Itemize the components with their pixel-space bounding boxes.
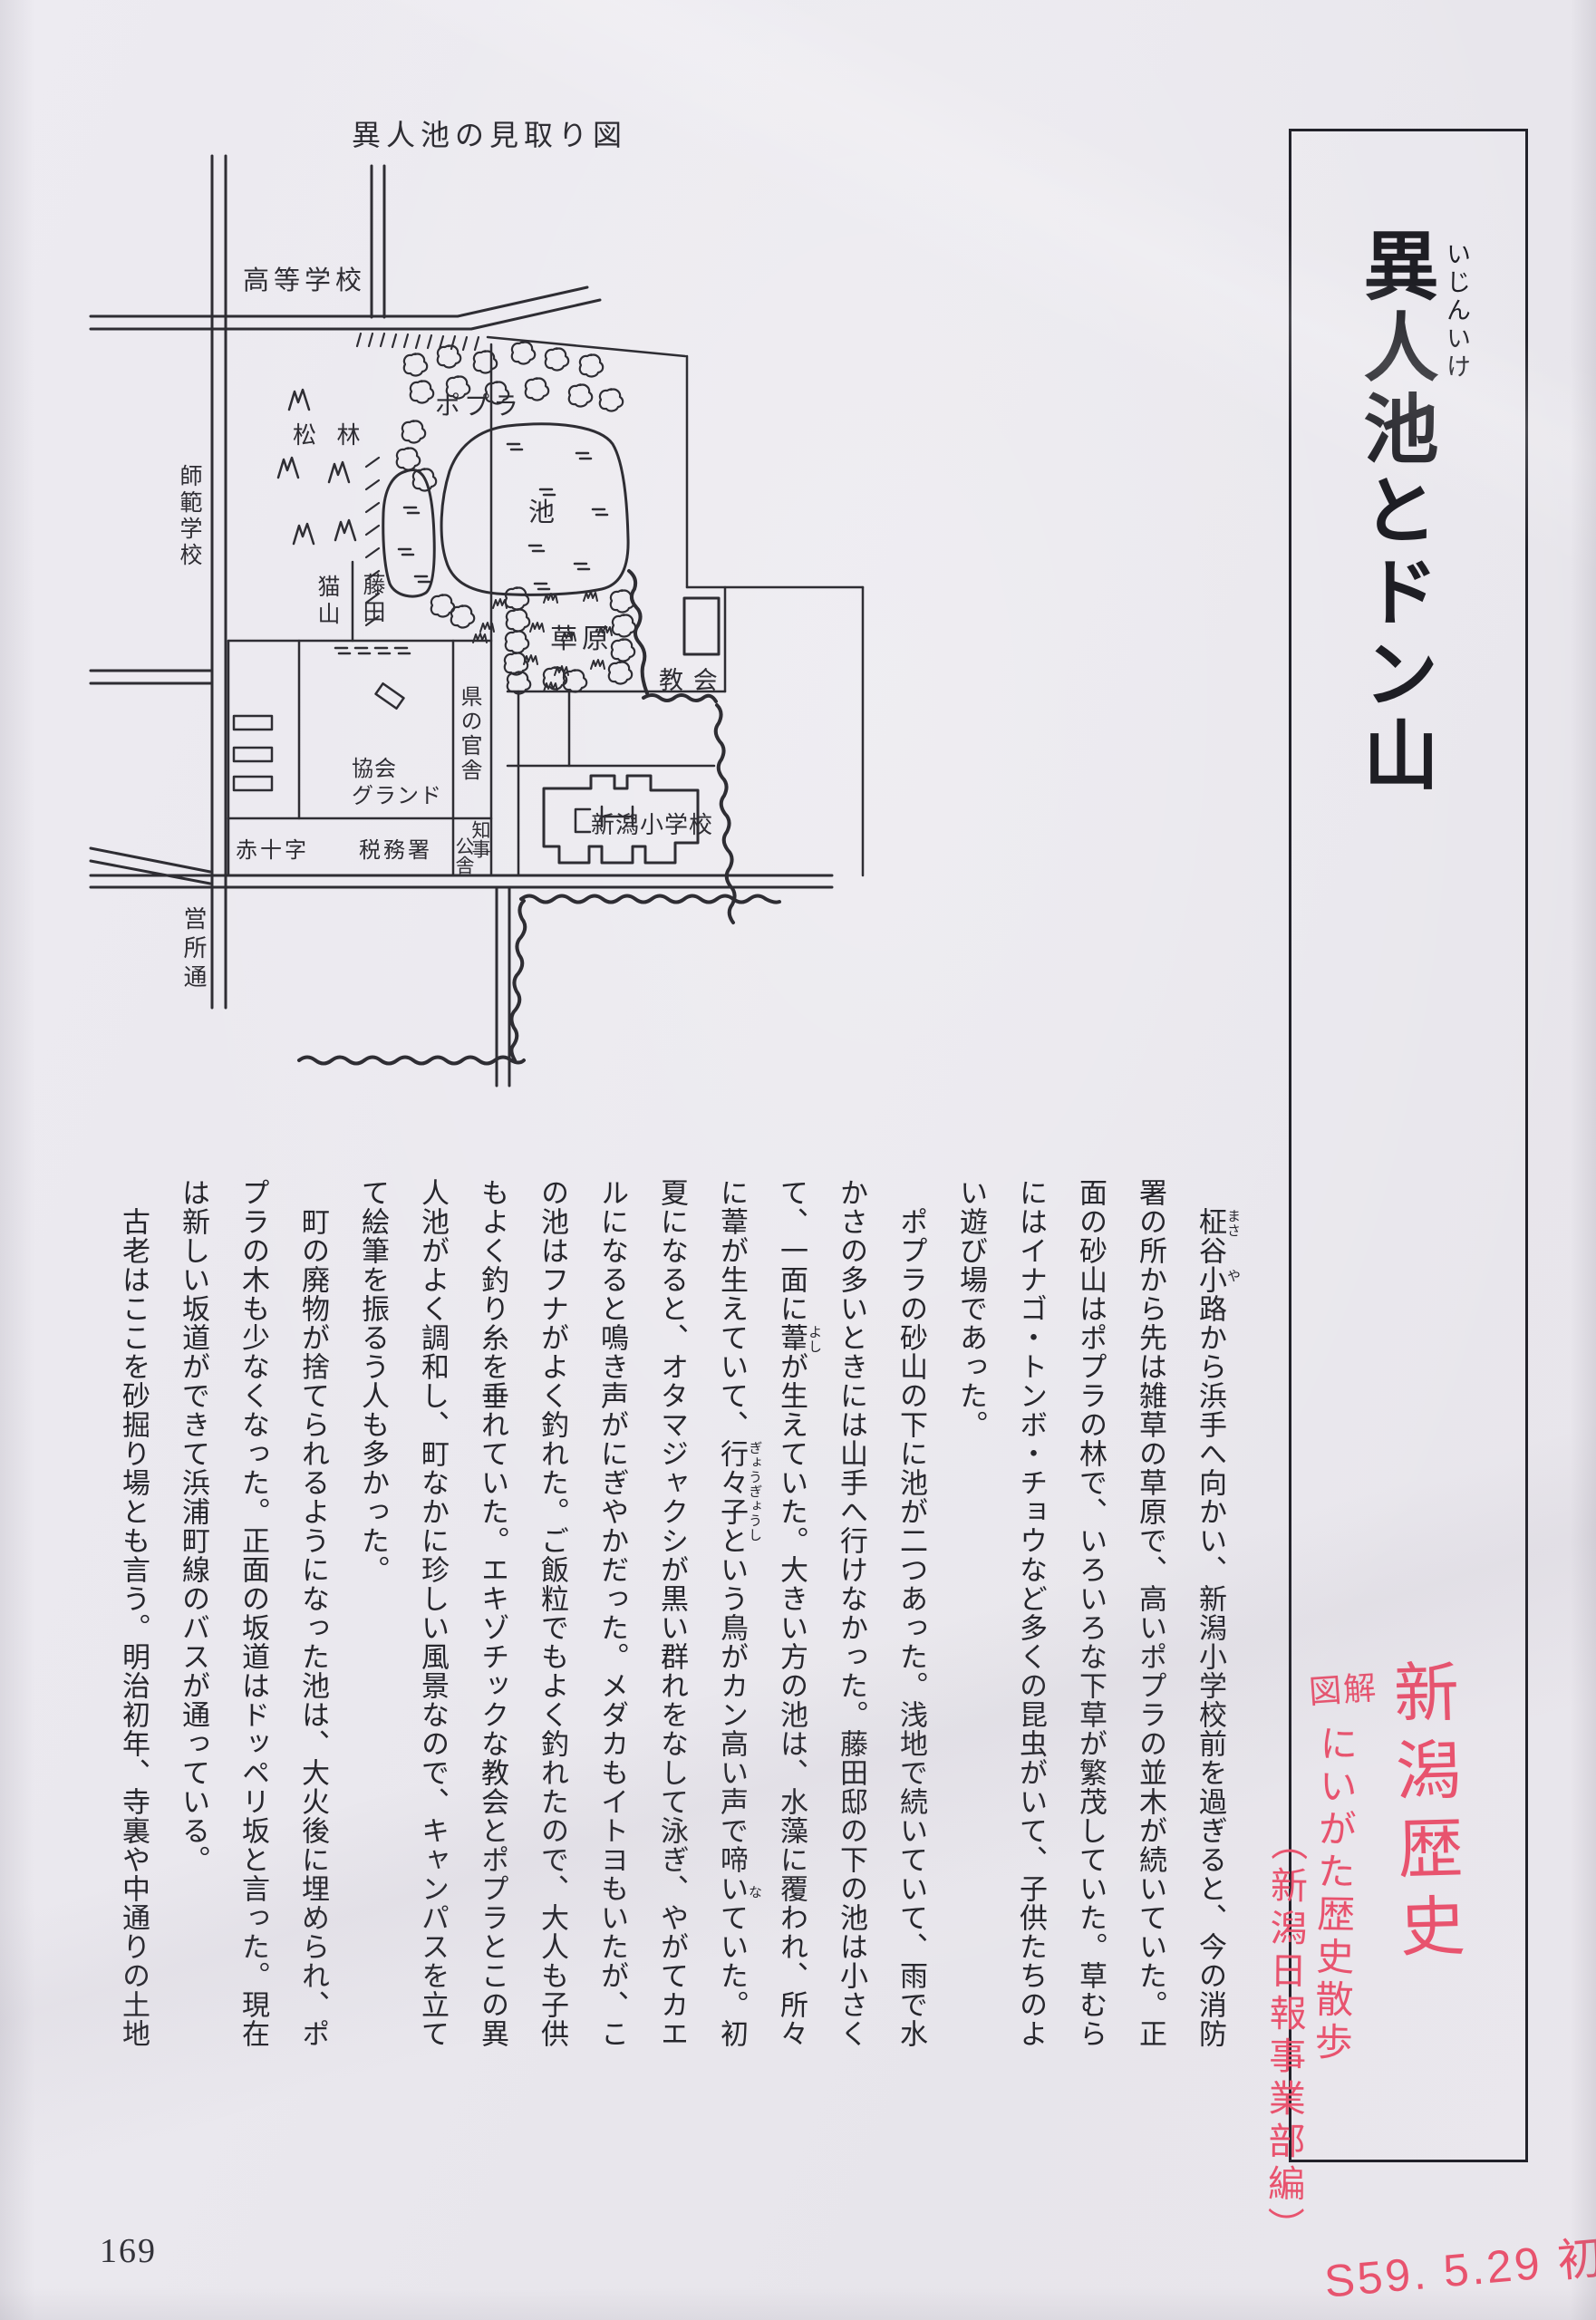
map-label-red-cross: 赤十字: [236, 832, 309, 864]
article-title-furigana: いじんいけ: [1444, 241, 1468, 382]
article-title: 異人池とドン山: [1356, 227, 1431, 797]
map-label-governor-l: 公舎: [454, 836, 473, 875]
furigana-na: な: [747, 1885, 760, 1899]
map-label-elementary: 新潟小学校: [591, 807, 713, 840]
pine-trees: [278, 390, 355, 544]
furigana-masa: まさ: [1225, 1209, 1239, 1238]
text-column: は新しい坂道ができて浜浦町線のバスが通っている。: [163, 1178, 223, 2125]
text-column: にはイナゴ・トンボ・チョウなど多くの昆虫がいて、子供たちのよ: [1001, 1178, 1060, 2125]
map-label-pine-grove: 松 林: [293, 417, 368, 450]
furigana-yoshi: よし: [807, 1325, 820, 1354]
text-column: ルになると鳴き声がにぎやかだった。メダカもイトヨもいたが、こ: [582, 1178, 642, 2125]
text-column: 古老はここを砂掘り場とも言う。明治初年、寺裏や中通りの土地: [103, 1178, 163, 2125]
handwritten-note-series: にいがた歴史散歩: [1311, 1724, 1356, 2065]
handwritten-note-publisher: （新潟日報事業部編）: [1263, 1823, 1304, 2249]
page-number: 169: [100, 2231, 157, 2271]
text-column: かさの多いときには山手へ行けなかった。藤田邸の下の池は小さく: [821, 1178, 881, 2125]
scanned-book-page: 異人池の見取り図: [0, 0, 1596, 2320]
map-label-poplar: ポプラ: [435, 386, 522, 422]
text-column: の池はフナがよく釣れた。ご飯粒でもよく釣れたので、大人も子供: [522, 1178, 582, 2125]
text-column: て、一面に葦が生えていた。大きい方の池は、水藻に覆われ、所々: [761, 1178, 821, 2125]
text-column: 柾谷小路から浜手へ向かい、新潟小学校前を過ぎると、今の消防: [1180, 1178, 1240, 2125]
map-label-eisho-street: 営所通: [181, 906, 205, 993]
text-column: い遊び場であった。: [941, 1178, 1001, 2125]
map-label-grassland: 草原: [550, 616, 614, 656]
text-column: 署の所から先は雑草の草原で、高いポプラの並木が続いていた。正: [1120, 1178, 1180, 2125]
handwritten-note-main: 新潟歴史: [1387, 1658, 1460, 1971]
text-column: 夏になると、オタマジャクシが黒い群れをなして泳ぎ、やがてカエ: [642, 1178, 701, 2125]
map-drawing: [82, 109, 879, 1160]
map-label-normal-school: 師範学校: [178, 464, 200, 569]
article-body: 柾谷小路から浜手へ向かい、新潟小学校前を過ぎると、今の消防 署の所から先は雑草の…: [103, 1178, 1240, 2125]
text-column: 面の砂山はポプラの林で、いろいろな下草が繁茂していた。草むら: [1060, 1178, 1120, 2125]
map-label-tax-office: 税務署: [359, 832, 432, 864]
map-label-church: 教 会: [659, 661, 720, 696]
text-column: ポプラの砂山の下に池が二つあった。浅地で続いていて、雨で水: [881, 1178, 941, 2125]
map-label-pref-residence: 県の官舎: [458, 685, 479, 783]
map-label-fujita: 藤田: [361, 573, 383, 627]
map-label-pond: 池: [528, 491, 555, 529]
text-column: プラの木も少なくなった。正面の坂道はドッペリ坂と言った。現在: [223, 1178, 283, 2125]
map-label-ground-2: グランド: [352, 778, 442, 809]
text-column: に葦が生えていて、行々子という鳥がカン高い声で啼いていた。初: [701, 1178, 761, 2125]
text-column: 人池がよく調和し、町なかに珍しい風景なので、キャンパスを立て: [402, 1178, 462, 2125]
furigana-ya: や: [1225, 1269, 1239, 1283]
text-column: て絵筆を振るう人も多かった。: [343, 1178, 402, 2125]
map-label-high-school: 高等学校: [243, 259, 366, 297]
handwritten-note-edition-date: S59. 5.29 初版: [1321, 2217, 1596, 2310]
water-marks: [399, 444, 607, 589]
church-building: [684, 598, 719, 654]
text-column: 町の廃物が捨てられるようになった池は、大火後に埋められ、ポ: [283, 1178, 343, 2125]
handwritten-note-zukai: 図解: [1307, 1661, 1378, 1713]
map-label-cat-hill: 猫山: [315, 575, 338, 629]
road-ticks: [357, 333, 479, 350]
furigana-gyogyoshi: ぎょうぎょうし: [747, 1441, 760, 1542]
text-column: もよく釣り糸を垂れていた。エキゾチックな教会とポプラとこの異: [462, 1178, 522, 2125]
